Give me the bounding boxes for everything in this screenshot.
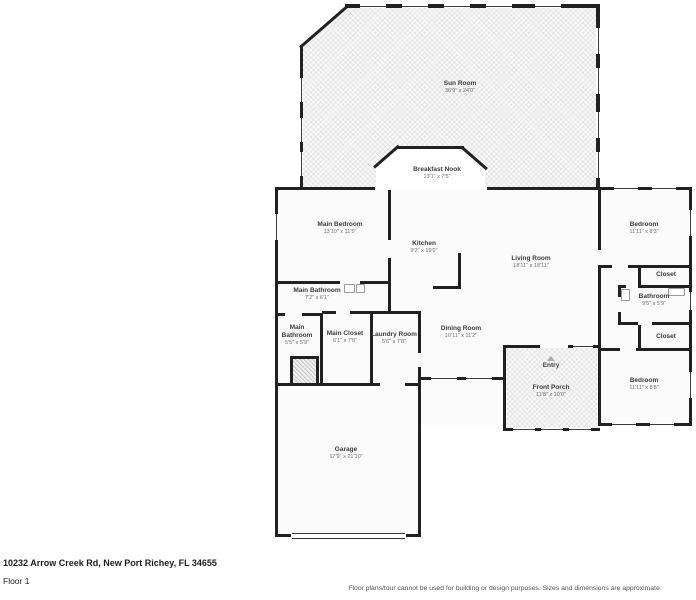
room-label-dining-room: Dining Room10'11" x 11'2": [415, 325, 507, 340]
room-label-main-bedroom: Main Bedroom13'10" x 11'5": [290, 221, 390, 236]
entry-arrow-icon: [547, 356, 555, 361]
window-pane: [513, 429, 535, 430]
room-label-main-bathroom: Main Bathroom7'2" x 6'1": [271, 287, 363, 302]
floorplan-canvas: Sun Room36'9" x 24'0"Breakfast Nook13'1"…: [0, 0, 696, 600]
window-pane: [690, 210, 691, 236]
wall: [275, 281, 340, 284]
window-icon: [573, 345, 593, 348]
room-dimensions: 17'9" x 21'10": [300, 454, 392, 461]
disclaimer-text: Floor plans/tour cannot be used for buil…: [318, 585, 692, 592]
window-pane: [360, 6, 386, 7]
room-dimensions: 9'2" x 19'0": [384, 248, 464, 255]
window-pane: [535, 6, 561, 7]
wall: [320, 313, 323, 383]
room-label-entry: Entry: [521, 356, 581, 370]
window-icon: [466, 377, 492, 380]
window-icon: [614, 187, 638, 190]
wall: [418, 383, 421, 537]
room-dimensions: 5'6" x 7'8": [370, 339, 418, 346]
window-icon: [612, 423, 636, 426]
room-name: Closet: [636, 271, 696, 279]
window-icon: [569, 428, 591, 431]
wall: [598, 348, 620, 351]
window-pane: [301, 118, 302, 142]
wall: [290, 356, 293, 383]
wall: [598, 268, 601, 348]
room-name: Main Bathroom: [271, 287, 363, 295]
room-name: Front Porch: [505, 384, 597, 392]
room-name: Living Room: [481, 255, 581, 263]
garage-door: [292, 533, 405, 539]
wall: [396, 146, 464, 149]
window-pane: [598, 28, 599, 54]
room-name: Closet: [636, 333, 696, 341]
window-icon: [360, 4, 386, 8]
room-label-front-porch: Front Porch11'8" x 10'0": [505, 384, 597, 399]
window-icon: [513, 428, 535, 431]
window-icon: [444, 4, 470, 8]
wall: [618, 312, 621, 322]
utility-hatch-square: [293, 359, 316, 383]
room-label-bedroom-bottom-right: Bedroom11'11" x 8'8": [601, 377, 687, 392]
window-icon: [275, 214, 278, 240]
wall: [316, 356, 319, 383]
window-icon: [689, 372, 692, 398]
breakfast-nook-floor: [396, 148, 462, 168]
wall: [302, 313, 322, 316]
window-icon: [300, 118, 303, 142]
window-pane: [598, 112, 599, 138]
window-pane: [301, 78, 302, 102]
wall: [618, 322, 638, 325]
window-icon: [650, 423, 674, 426]
wall: [388, 281, 391, 313]
room-name: Entry: [521, 362, 581, 370]
room-name: Garage: [300, 446, 392, 454]
window-pane: [431, 378, 457, 379]
window-pane: [690, 372, 691, 398]
wall: [350, 311, 418, 314]
wall: [433, 286, 460, 289]
window-icon: [431, 377, 457, 380]
room-name: Dining Room: [415, 325, 507, 333]
wall: [598, 187, 601, 250]
window-pane: [541, 429, 563, 430]
room-name: Main Bedroom: [290, 221, 390, 229]
window-pane: [301, 152, 302, 176]
room-dimensions: 10'11" x 11'2": [415, 333, 507, 340]
room-name: Laundry Room: [370, 331, 418, 339]
wall: [636, 348, 692, 351]
room-label-bedroom-top-right: Bedroom11'11" x 8'3": [601, 221, 687, 236]
room-name: Bathroom: [616, 293, 692, 301]
window-icon: [402, 4, 428, 8]
room-label-breakfast-nook: Breakfast Nook13'1" x 7'5": [387, 166, 487, 181]
room-label-closet-bottom-right: Closet: [636, 333, 696, 341]
wall: [458, 253, 461, 289]
room-dimensions: 13'1" x 7'5": [387, 174, 487, 181]
window-icon: [541, 428, 563, 431]
room-dimensions: 9'5" x 5'9": [616, 301, 692, 308]
room-label-living-room: Living Room18'11" x 18'11": [481, 255, 581, 270]
window-pane: [598, 68, 599, 94]
window-pane: [486, 6, 512, 7]
room-label-laundry-room: Laundry Room5'6" x 7'8": [370, 331, 418, 346]
window-pane: [573, 346, 593, 347]
window-pane: [612, 424, 636, 425]
wall: [322, 311, 336, 314]
window-icon: [596, 28, 600, 54]
room-label-closet-top-right: Closet: [636, 271, 696, 279]
wall: [505, 345, 540, 348]
room-dimensions: 13'10" x 11'5": [290, 229, 390, 236]
window-pane: [569, 429, 591, 430]
window-pane: [276, 214, 277, 240]
room-dimensions: 11'11" x 8'8": [601, 385, 687, 392]
window-pane: [652, 188, 676, 189]
window-icon: [596, 152, 600, 178]
room-dimensions: 11'11" x 8'3": [601, 229, 687, 236]
room-dimensions: 36'9" x 24'0": [400, 88, 520, 95]
window-pane: [598, 152, 599, 178]
room-label-garage: Garage17'9" x 21'10": [300, 446, 392, 461]
window-icon: [596, 112, 600, 138]
room-name: Breakfast Nook: [387, 166, 487, 174]
wall: [275, 383, 380, 386]
floor-label: Floor 1: [3, 576, 29, 586]
wall: [275, 187, 375, 190]
wall: [370, 311, 373, 383]
room-label-sun-room: Sun Room36'9" x 24'0": [400, 80, 520, 95]
window-icon: [596, 68, 600, 94]
window-pane: [444, 6, 470, 7]
room-dimensions: 18'11" x 18'11": [481, 263, 581, 270]
room-name: Kitchen: [384, 240, 464, 248]
window-icon: [300, 152, 303, 176]
window-icon: [652, 187, 676, 190]
wall: [652, 322, 692, 325]
window-pane: [650, 424, 674, 425]
window-icon: [535, 4, 561, 8]
room-name: Bedroom: [601, 377, 687, 385]
room-dimensions: 11'8" x 10'0": [505, 392, 597, 399]
room-name: Bedroom: [601, 221, 687, 229]
room-label-bathroom-right: Bathroom9'5" x 5'9": [616, 293, 692, 308]
room-dimensions: 7'2" x 6'1": [271, 295, 363, 302]
wall: [290, 356, 318, 359]
window-icon: [300, 78, 303, 102]
window-icon: [486, 4, 512, 8]
property-address: 10232 Arrow Creek Rd, New Port Richey, F…: [3, 558, 217, 568]
window-pane: [614, 188, 638, 189]
wall: [418, 367, 421, 383]
window-pane: [402, 6, 428, 7]
window-pane: [466, 378, 492, 379]
window-icon: [689, 210, 692, 236]
room-label-kitchen: Kitchen9'2" x 19'0": [384, 240, 464, 255]
room-name: Sun Room: [400, 80, 520, 88]
